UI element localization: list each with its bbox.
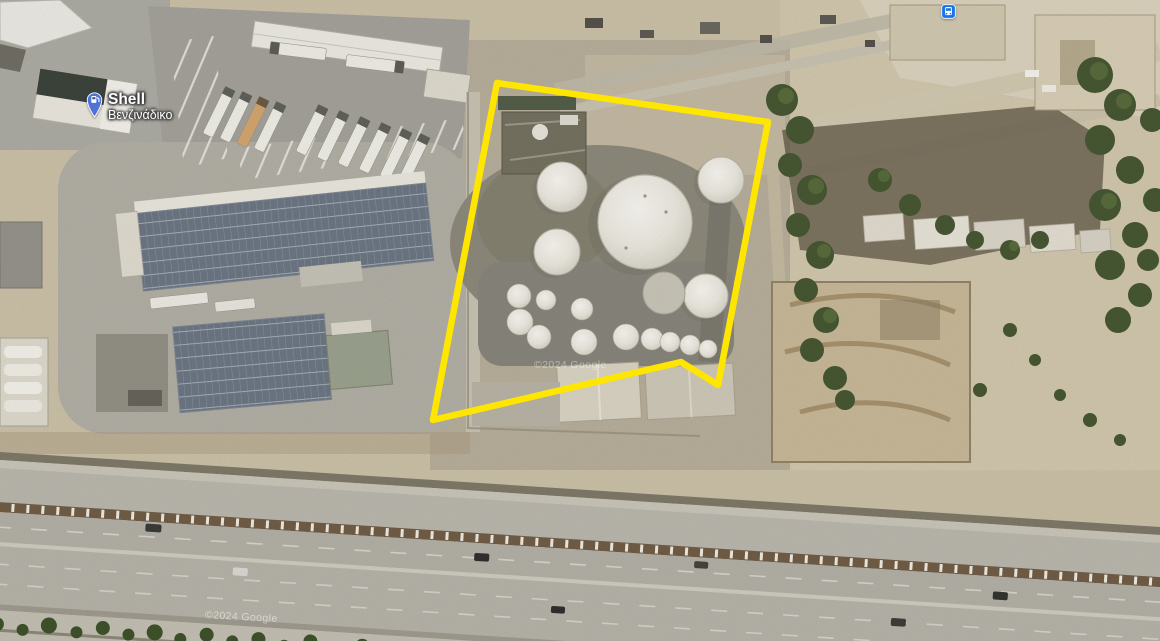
gas-pump-pin-icon[interactable]: [84, 90, 105, 118]
shell-marker-label: Shell Βενζινάδικο: [108, 92, 172, 122]
shell-marker-title: Shell: [108, 92, 172, 108]
map-canvas[interactable]: Shell Βενζινάδικο ©2024 Google ©2024 Goo…: [0, 0, 1160, 641]
bus-stop-icon[interactable]: [941, 4, 956, 19]
satellite-imagery: [0, 0, 1160, 641]
shell-marker-subtitle: Βενζινάδικο: [108, 109, 172, 122]
shell-station-marker[interactable]: Shell Βενζινάδικο: [84, 90, 172, 122]
